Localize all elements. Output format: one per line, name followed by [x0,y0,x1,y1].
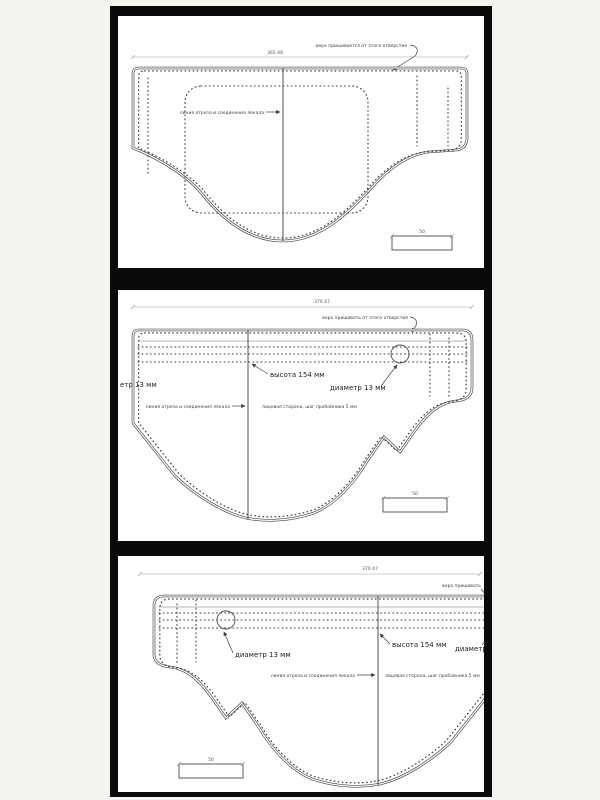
outer-contour-inner-line [154,596,484,786]
pattern-sheet-top: 365.48 верх пришивается от этого отверст… [118,16,484,268]
attach-note-leader [481,589,484,595]
pocket-stitch-rect [185,86,368,213]
strap-piece [383,498,447,512]
diameter-label-cut-left: етр 13 мм [120,381,157,389]
page: 365.48 верх пришивается от этого отверст… [0,0,600,800]
height-label: высота 154 мм [270,371,325,379]
pattern-drawing-bottom: 370.47 верх пришивать диаметр 13 мм [118,556,484,792]
outer-contour [133,330,472,520]
stitch-line [139,71,462,238]
height-label-leader [252,364,268,374]
mirrored-pattern-geometry [154,596,484,786]
diameter-label: диаметр 13 мм [235,651,291,659]
diameter-label-leader [381,365,397,386]
width-dimension-value: 370.47 [314,299,330,305]
strap-dimension-value: 50 [208,757,214,763]
attach-note: верх пришивать от этого отверстия [322,316,408,321]
attach-note-cut: верх пришивать [442,584,481,589]
strap-dimension-value: 50 [419,229,425,235]
cutline-note: линия отреза и соединения лекала [146,405,230,410]
outer-contour-inner-line [133,330,472,520]
pattern-drawing-middle: 370.47 верх пришивать от этого отверстия… [118,290,484,541]
pattern-drawing-top: 365.48 верх пришивается от этого отверст… [118,16,484,268]
attach-note: верх пришивается от этого отверстия [316,44,407,49]
strap-dimension-value: 50 [412,491,418,497]
face-side-note: лицевая сторона, шаг пробойника 5 мм [262,403,357,410]
pattern-sheet-middle: 370.47 верх пришивать от этого отверстия… [118,290,484,541]
stitch-line [139,333,466,517]
strap-piece [392,236,452,250]
strap-piece [179,764,243,778]
diameter-label-leader [224,632,233,653]
width-dimension-value: 370.47 [362,566,378,572]
cutline-note: линия отреза и соединения лекала [271,674,355,679]
width-dimension-value: 365.48 [267,50,283,56]
outer-contour [154,596,484,786]
height-label: высота 154 мм [392,641,447,649]
cutline-note: линия отреза и соединения лекала [180,111,264,116]
diameter-label: диаметр 13 мм [330,384,386,392]
diameter-label-cut-right: диаметр [455,645,484,653]
height-label-leader [380,634,390,644]
face-side-note: лицевая сторона, шаг пробойника 5 мм [385,672,480,679]
pattern-sheet-bottom: 370.47 верх пришивать диаметр 13 мм [118,556,484,792]
outer-contour-inner-line [133,68,467,241]
